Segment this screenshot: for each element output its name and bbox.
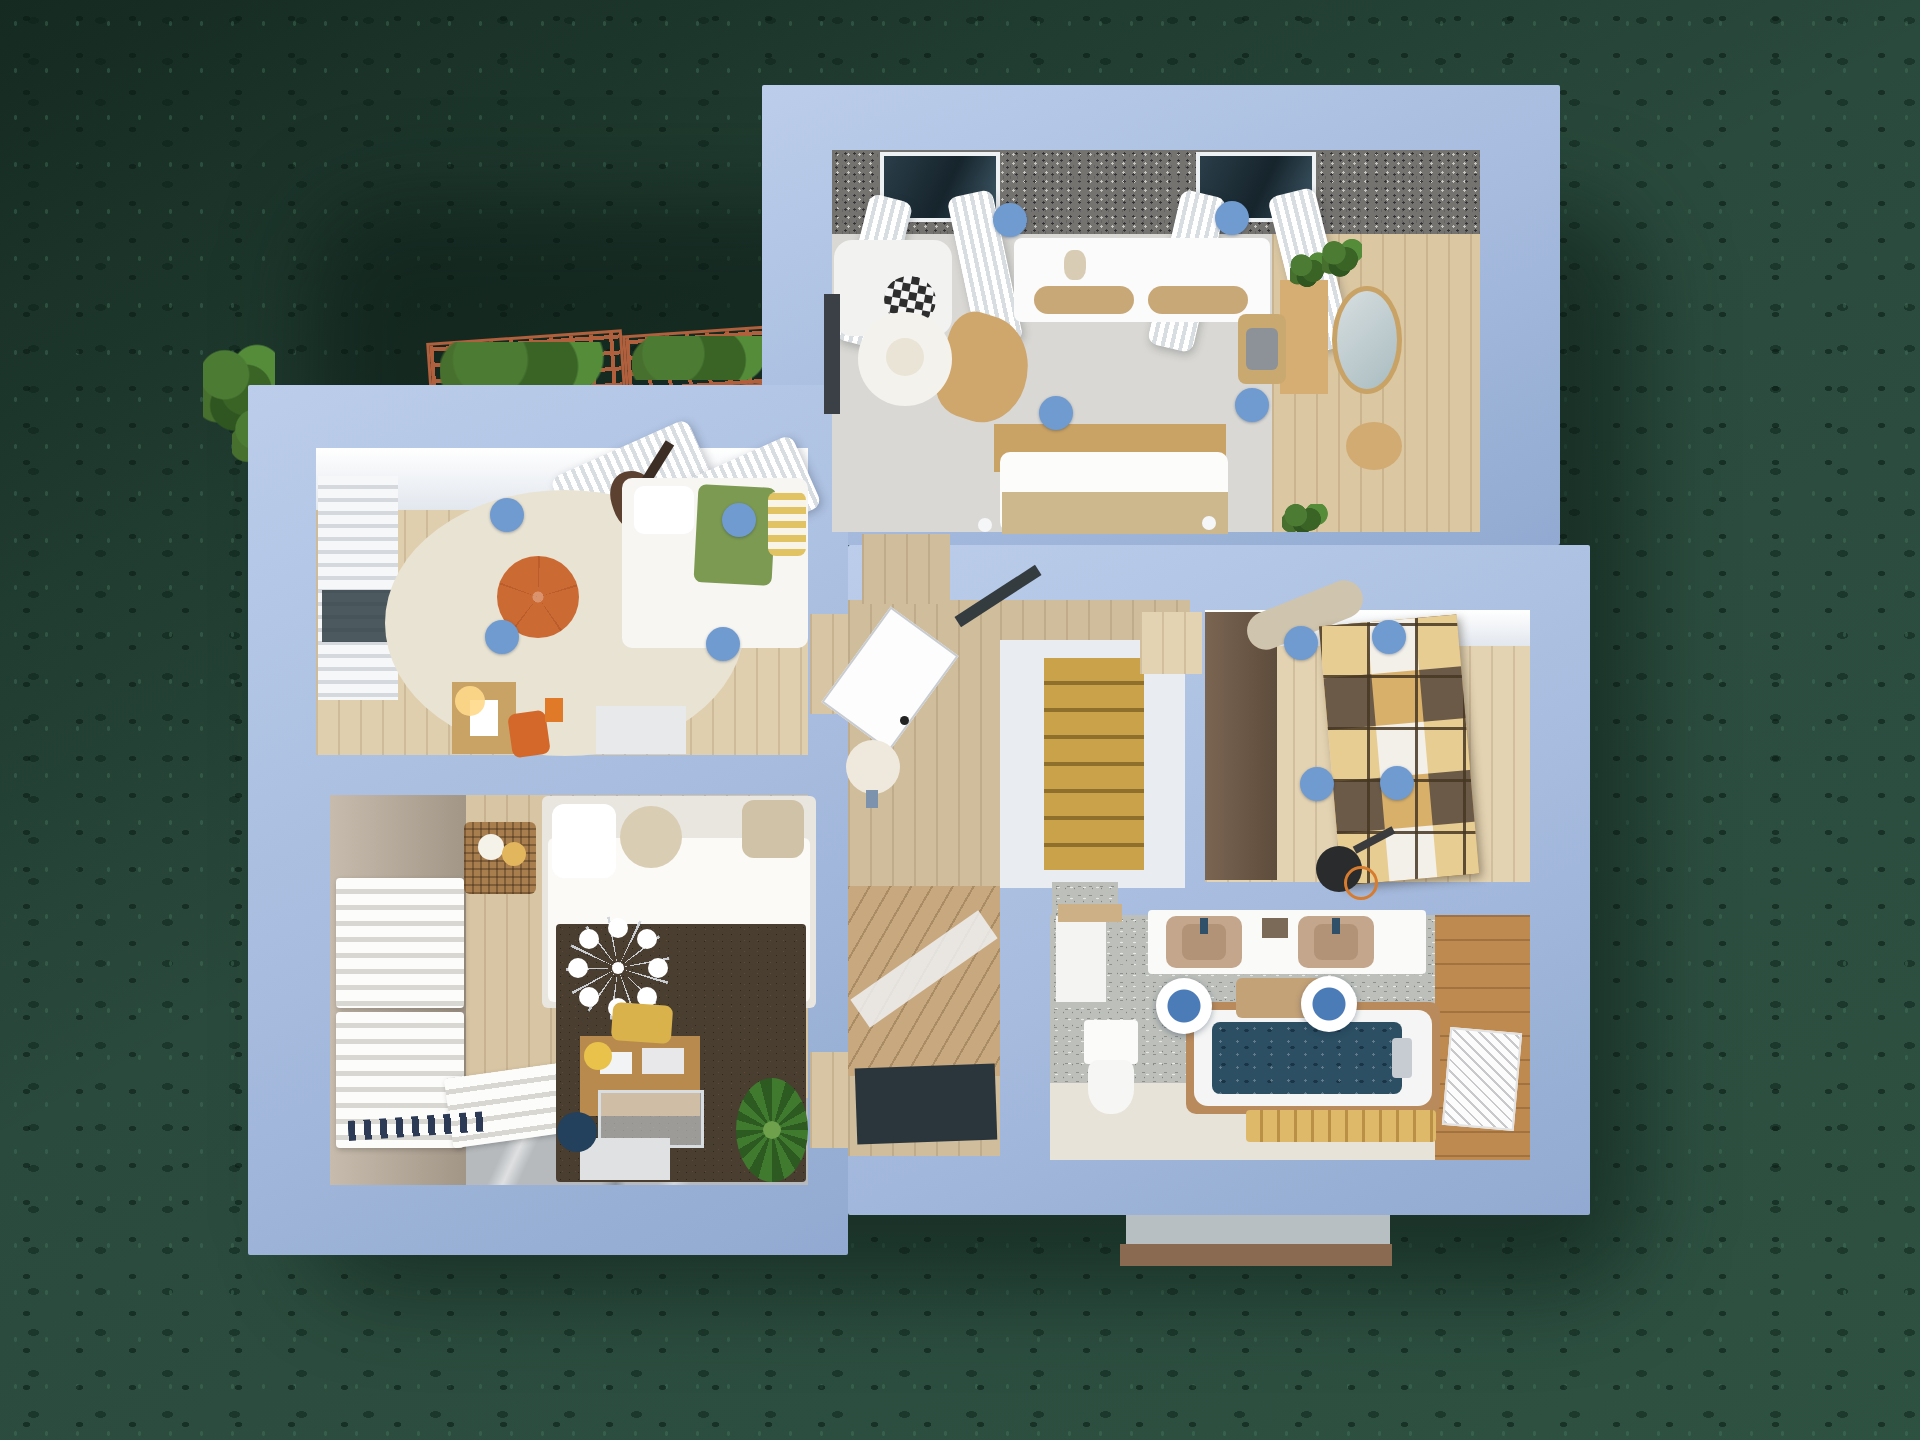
lamp-cable — [1344, 866, 1378, 900]
entry-ledge-edge — [1120, 1244, 1392, 1266]
door-knob-cap — [1202, 516, 1216, 530]
balcony-plants — [632, 336, 770, 380]
pillow — [634, 486, 694, 534]
hanging-towels — [336, 878, 464, 1008]
desk-lamp — [584, 1042, 612, 1070]
faucet — [1332, 918, 1340, 934]
toilet-tank — [1084, 1020, 1138, 1064]
bed-blanket — [1002, 492, 1228, 534]
hall-table-leg — [866, 790, 878, 808]
hotspot-dot-closet-4[interactable] — [1380, 766, 1414, 800]
hotspot-dot-master-bed[interactable] — [1039, 396, 1073, 430]
hotspot-dark-dot-office-rug[interactable] — [557, 1112, 597, 1152]
hotspot-dot-bedroom-bed-top[interactable] — [722, 503, 756, 537]
pillow — [552, 804, 616, 878]
hotspot-dot-closet-3[interactable] — [1300, 767, 1334, 801]
door-mat — [1058, 904, 1122, 922]
door-knob-cap — [978, 518, 992, 532]
stair-landing-mat — [855, 1064, 998, 1145]
nightstand-dish — [502, 842, 526, 866]
wall-shelf — [1056, 916, 1106, 1002]
hotspot-ring-bathroom-left[interactable] — [1156, 978, 1212, 1034]
toilet-bowl — [1088, 1060, 1134, 1114]
desk-plant — [1322, 236, 1362, 278]
dresser-rattan-drawer — [1034, 286, 1134, 314]
palm-plant — [736, 1078, 808, 1182]
hotspot-dot-master-desk[interactable] — [1235, 388, 1269, 422]
window-blinds — [318, 476, 398, 700]
vase — [1064, 250, 1086, 280]
master-door-opening — [862, 534, 950, 604]
hotspot-ring-bathroom-right[interactable] — [1301, 976, 1357, 1032]
hotspot-dot-closet-2[interactable] — [1372, 620, 1406, 654]
pillow — [742, 800, 804, 858]
desk-chair-seat — [1246, 328, 1278, 370]
hotspot-dot-bedroom-window[interactable] — [490, 498, 524, 532]
cubby-shelving — [1319, 614, 1479, 885]
table-lamp — [886, 338, 924, 376]
hall-table — [846, 740, 900, 794]
towel-art — [1442, 1027, 1522, 1131]
faucet — [1200, 918, 1208, 934]
closet-door-opening — [1140, 612, 1202, 674]
hotspot-dot-bedroom-bed-bottom[interactable] — [706, 627, 740, 661]
desk-lamp-glow — [455, 686, 485, 716]
hotspot-dot-master-window[interactable] — [1215, 201, 1249, 235]
dresser-rattan-drawer — [1148, 286, 1248, 314]
hotspot-dot-closet-1[interactable] — [1284, 626, 1318, 660]
wardrobe — [1205, 612, 1277, 880]
stool — [1346, 422, 1402, 470]
knotted-pillow — [620, 806, 682, 868]
desk — [1280, 280, 1328, 394]
hotspot-dot-bedroom-rug[interactable] — [485, 620, 519, 654]
wall-mirror — [1332, 286, 1402, 394]
tub-water — [1212, 1022, 1402, 1094]
yellow-chair — [611, 1002, 674, 1044]
door-handle — [900, 716, 909, 725]
floorplan-render-canvas — [0, 0, 1920, 1440]
orange-accent — [545, 698, 563, 722]
striped-pillow — [768, 492, 806, 556]
leaning-mirror — [824, 294, 840, 414]
tub-faucet — [1392, 1038, 1412, 1078]
office-door-opening — [810, 1052, 848, 1148]
toiletries — [1262, 918, 1288, 938]
slat-mat — [1246, 1110, 1436, 1142]
nightstand-lamp — [478, 834, 504, 860]
hotspot-dot-master-wall[interactable] — [993, 203, 1027, 237]
balcony-plants — [440, 342, 608, 386]
monitor — [642, 1048, 684, 1074]
window-gap — [322, 590, 392, 642]
small-cabinet — [596, 706, 686, 754]
printer — [580, 1138, 670, 1180]
flowers — [1282, 504, 1328, 532]
staircase — [1040, 658, 1148, 870]
